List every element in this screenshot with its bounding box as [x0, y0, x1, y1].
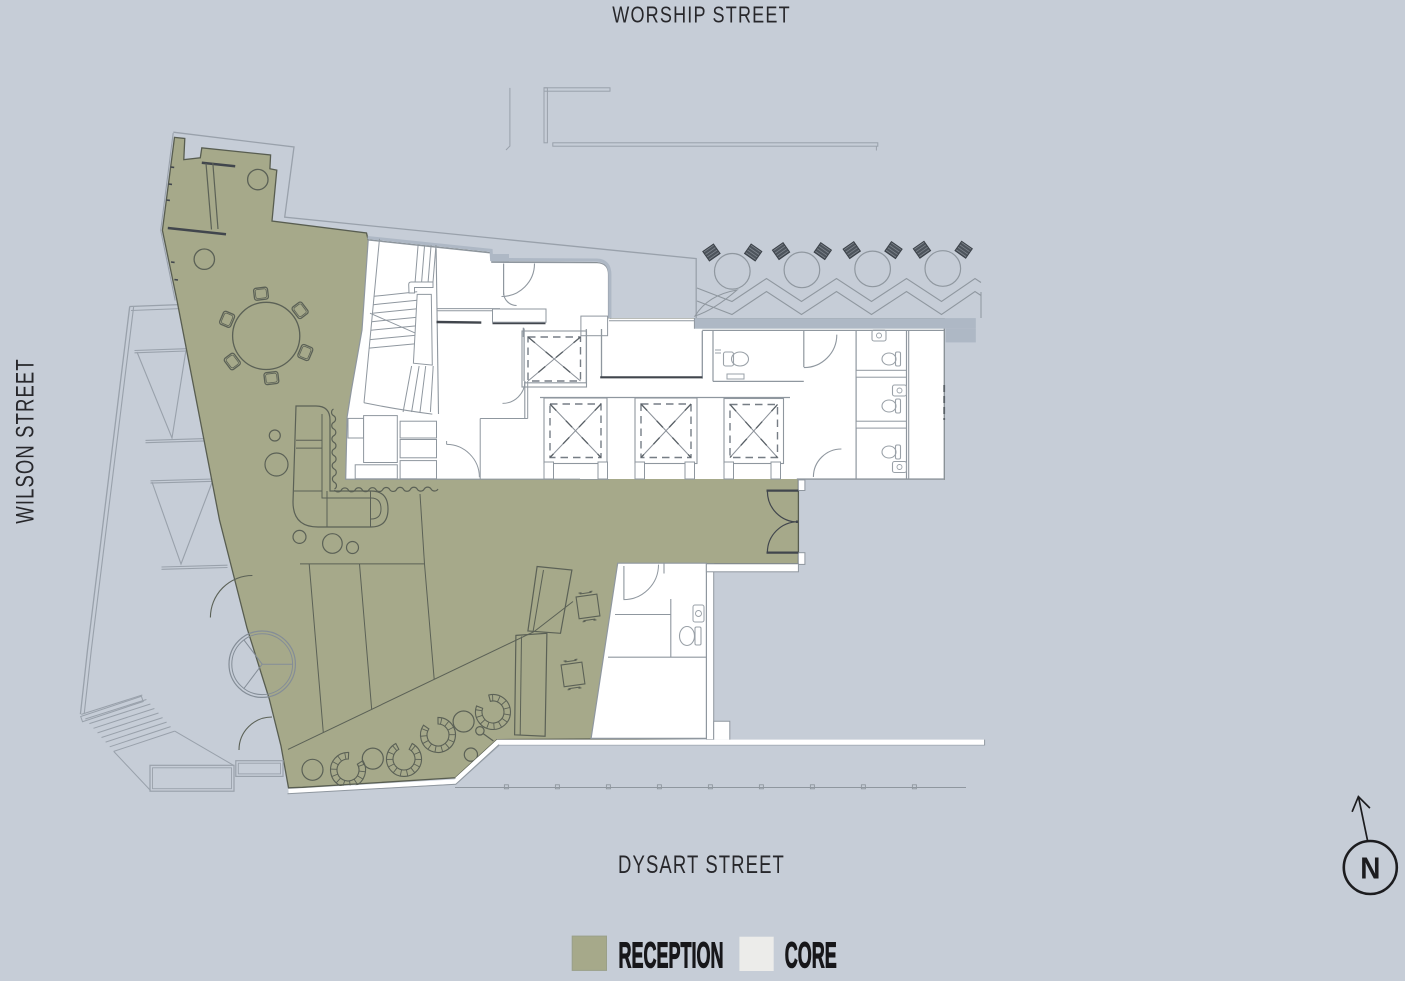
svg-text:DYSART STREET: DYSART STREET	[618, 850, 785, 878]
svg-text:CORE: CORE	[785, 936, 837, 976]
svg-text:RECEPTION: RECEPTION	[619, 936, 724, 976]
svg-text:N: N	[1360, 851, 1380, 886]
svg-text:WILSON STREET: WILSON STREET	[11, 358, 39, 523]
svg-text:WORSHIP STREET: WORSHIP STREET	[612, 2, 791, 28]
